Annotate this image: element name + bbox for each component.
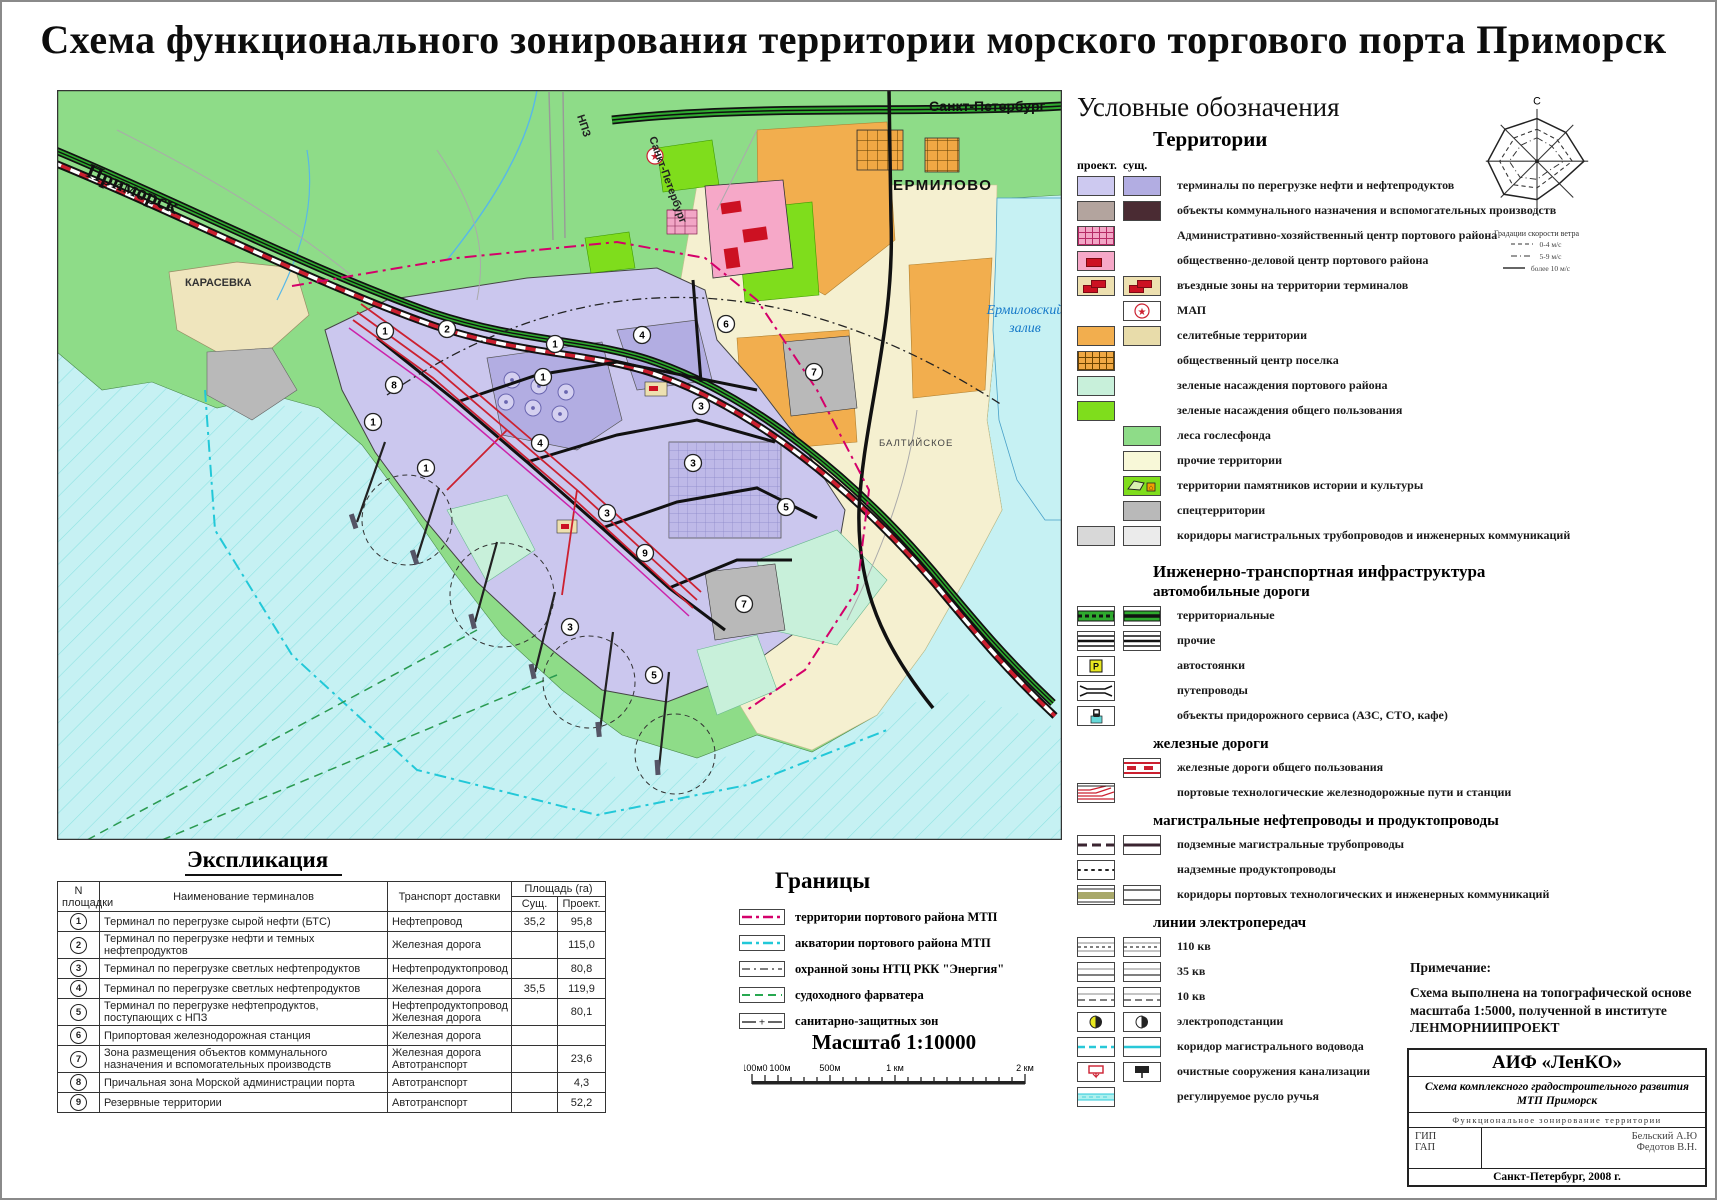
site-number: 6 bbox=[70, 1027, 87, 1044]
legend-label: территориальные bbox=[1169, 609, 1275, 623]
legend-label: зеленые насаждения портового района bbox=[1169, 379, 1388, 393]
swatch-road-other-proj bbox=[1077, 631, 1115, 651]
col-header-area: Площадь (га) bbox=[512, 882, 606, 897]
pipes-heading: магистральные нефтепроводы и продуктопро… bbox=[1153, 813, 1702, 830]
svg-text:1: 1 bbox=[540, 373, 546, 384]
site-number: 4 bbox=[70, 980, 87, 997]
legend-row: общественный центр поселка bbox=[1077, 349, 1702, 373]
swatch-terminals-proj bbox=[1077, 176, 1115, 196]
legend-row: 110 кв bbox=[1077, 935, 1702, 959]
swatch-water-main-proj bbox=[1077, 1037, 1115, 1057]
stamp-name-2: Федотов В.Н. bbox=[1490, 1142, 1697, 1153]
legend-row: коридоры магистральных трубопроводов и и… bbox=[1077, 524, 1702, 548]
svg-text:1: 1 bbox=[423, 464, 429, 475]
swatch-rail-port bbox=[1077, 783, 1115, 803]
legend-row: железные дороги общего пользования bbox=[1077, 756, 1702, 780]
legend-label: Административно-хозяйственный центр порт… bbox=[1169, 229, 1497, 243]
svg-text:4: 4 bbox=[639, 331, 645, 342]
table-row: 9Резервные территорииАвтотранспорт52,2 bbox=[58, 1093, 606, 1113]
legend-label: 35 кв bbox=[1169, 965, 1205, 979]
stamp-subtitle: Функциональное зонирование территории bbox=[1409, 1113, 1705, 1128]
wind-rose: С Градации скорости ветра 0-4 м/с 5-9 м/… bbox=[1454, 94, 1619, 274]
legend-label: прочие bbox=[1169, 634, 1215, 648]
entrance-zone-mark bbox=[561, 524, 569, 529]
svg-text:P: P bbox=[1093, 662, 1099, 672]
map-canvas: ★ Приморск Санкт-Петербург Санкт-Петербу… bbox=[57, 90, 1062, 840]
svg-text:⌂: ⌂ bbox=[1149, 484, 1153, 492]
note-text: Схема выполнена на топографической основ… bbox=[1410, 984, 1710, 1037]
svg-text:1: 1 bbox=[552, 340, 558, 351]
table-row: 3Терминал по перегрузке светлых нефтепро… bbox=[58, 959, 606, 979]
label-bay-1: Ермиловский bbox=[986, 303, 1062, 318]
stamp-signatures: ГИП ГАП Бельский А.Ю Федотов В.Н. bbox=[1409, 1128, 1705, 1169]
scale-tick-label: 2 км bbox=[1016, 1063, 1034, 1073]
legend-row: ⌂ территории памятников истории и культу… bbox=[1077, 474, 1702, 498]
legend-label: коридоры магистральных трубопроводов и и… bbox=[1169, 529, 1570, 543]
stamp-project: Схема комплексного градостроительного ра… bbox=[1409, 1077, 1705, 1113]
table-row: 2Терминал по перегрузке нефти и темных н… bbox=[58, 932, 606, 959]
legend-row: территориальные bbox=[1077, 604, 1702, 628]
table-row: 4Терминал по перегрузке светлых нефтепро… bbox=[58, 979, 606, 999]
border-label: судоходного фарватера bbox=[785, 988, 924, 1003]
swatch-entrance-sush bbox=[1123, 276, 1161, 296]
wind-grade-label: более 10 м/с bbox=[1531, 264, 1570, 273]
border-row: судоходного фарватера bbox=[739, 982, 1039, 1008]
site-number: 2 bbox=[70, 937, 87, 954]
col-header-proj: Проект. bbox=[558, 897, 606, 912]
swatch-settlement-center bbox=[1077, 351, 1115, 371]
legend-label: автостоянки bbox=[1169, 659, 1245, 673]
legend-row: спецтерритории bbox=[1077, 499, 1702, 523]
settlement-center bbox=[857, 130, 903, 170]
swatch-rail-common bbox=[1123, 758, 1161, 778]
swatch-monuments: ⌂ bbox=[1123, 476, 1161, 496]
scale-label: Масштаб 1:10000 bbox=[739, 1030, 1049, 1055]
entrance-zone-mark bbox=[649, 386, 658, 391]
swatch-sewage-sush bbox=[1123, 1062, 1161, 1082]
swatch-other-territories bbox=[1123, 451, 1161, 471]
settlement-center bbox=[925, 138, 959, 172]
svg-text:+: + bbox=[759, 1017, 765, 1029]
site-number: 1 bbox=[70, 913, 87, 930]
swatch-communal-sush bbox=[1123, 201, 1161, 221]
legend-label: 110 кв bbox=[1169, 940, 1211, 954]
explication: Экспликация N площадки Наименование терм… bbox=[57, 847, 605, 1113]
svg-text:9: 9 bbox=[642, 549, 648, 560]
swatch-corridors-sush bbox=[1123, 526, 1161, 546]
border-label: акватории портового района МТП bbox=[785, 936, 991, 951]
legend-row: P автостоянки bbox=[1077, 654, 1702, 678]
stamp-role-2: ГАП bbox=[1415, 1142, 1475, 1153]
legend-label: путепроводы bbox=[1169, 684, 1248, 698]
swatch-35kv-proj bbox=[1077, 962, 1115, 982]
scale-tick-label: 0 bbox=[762, 1063, 767, 1073]
site-number: 8 bbox=[70, 1074, 87, 1091]
swatch-stream-bed bbox=[1077, 1087, 1115, 1107]
wind-grade: 5-9 м/с bbox=[1454, 250, 1619, 262]
scheme-page: Схема функционального зонирования террит… bbox=[0, 0, 1717, 1200]
legend-label: объекты придорожного сервиса (АЗС, СТО, … bbox=[1169, 709, 1448, 723]
note-heading: Примечание: bbox=[1410, 960, 1710, 976]
swatch-road-other-sush bbox=[1123, 631, 1161, 651]
wind-rose-caption: Градации скорости ветра bbox=[1454, 229, 1619, 238]
col-header-transport: Транспорт доставки bbox=[388, 882, 512, 912]
border-label: охранной зоны НТЦ РКК "Энергия" bbox=[785, 962, 1004, 977]
explication-table: N площадки Наименование терминалов Транс… bbox=[57, 881, 606, 1113]
swatch-spec-territories bbox=[1123, 501, 1161, 521]
col-header-num: N площадки bbox=[58, 882, 100, 912]
legend-label: въездные зоны на территории терминалов bbox=[1169, 279, 1408, 293]
label-bay-2: залив bbox=[1008, 321, 1041, 336]
swatch-fairway-border bbox=[739, 987, 785, 1003]
swatch-roadside-service bbox=[1077, 706, 1115, 726]
legend-label: терминалы по перегрузке нефти и нефтепро… bbox=[1169, 179, 1454, 193]
map: ★ Приморск Санкт-Петербург Санкт-Петербу… bbox=[57, 90, 1062, 840]
swatch-sewage-proj bbox=[1077, 1062, 1115, 1082]
swatch-water-main-sush bbox=[1123, 1037, 1161, 1057]
legend-label: электроподстанции bbox=[1169, 1015, 1283, 1029]
swatch-road-terr-proj bbox=[1077, 606, 1115, 626]
label-karasevka: КАРАСЕВКА bbox=[185, 277, 252, 289]
border-row: акватории портового района МТП bbox=[739, 930, 1039, 956]
legend-label: прочие территории bbox=[1169, 454, 1282, 468]
label-ermilovo: ЕРМИЛОВО bbox=[893, 177, 992, 194]
scale-tick-label: 1 км bbox=[886, 1063, 904, 1073]
legend-row: зеленые насаждения общего пользования bbox=[1077, 399, 1702, 423]
svg-text:5: 5 bbox=[783, 503, 789, 514]
legend-row: зеленые насаждения портового района bbox=[1077, 374, 1702, 398]
legend-label: спецтерритории bbox=[1169, 504, 1265, 518]
legend-label: очистные сооружения канализации bbox=[1169, 1065, 1370, 1079]
legend-label: железные дороги общего пользования bbox=[1169, 761, 1383, 775]
swatch-port-greenery bbox=[1077, 376, 1115, 396]
auto-roads-heading: автомобильные дороги bbox=[1153, 584, 1702, 601]
infra-heading: Инженерно-транспортная инфраструктура bbox=[1153, 562, 1702, 582]
swatch-terminals-sush bbox=[1123, 176, 1161, 196]
swatch-tech-corridor-proj bbox=[1077, 885, 1115, 905]
page-title: Схема функционального зонирования террит… bbox=[2, 16, 1705, 63]
swatch-residential-sush bbox=[1123, 326, 1161, 346]
rail-heading: железные дороги bbox=[1153, 736, 1702, 753]
swatch-admin-center bbox=[1077, 226, 1115, 246]
table-row: 1Терминал по перегрузке сырой нефти (БТС… bbox=[58, 912, 606, 932]
swatch-sanitary-zone-border: + bbox=[739, 1013, 785, 1029]
legend-row: въездные зоны на территории терминалов bbox=[1077, 274, 1702, 298]
table-row: 8Причальная зона Морской администрации п… bbox=[58, 1073, 606, 1093]
stamp-name-1: Бельский А.Ю bbox=[1490, 1131, 1697, 1142]
scale-tick-label: 100м bbox=[744, 1063, 763, 1073]
svg-text:1: 1 bbox=[370, 418, 376, 429]
swatch-10kv-sush bbox=[1123, 987, 1161, 1007]
legend-row: путепроводы bbox=[1077, 679, 1702, 703]
border-row: охранной зоны НТЦ РКК "Энергия" bbox=[739, 956, 1039, 982]
swatch-overpass bbox=[1077, 681, 1115, 701]
legend-label: коридоры портовых технологических и инже… bbox=[1169, 888, 1549, 902]
wind-grade-label: 0-4 м/с bbox=[1539, 240, 1561, 249]
legend-label: коридор магистрального водовода bbox=[1169, 1040, 1364, 1054]
swatch-road-terr-sush bbox=[1123, 606, 1161, 626]
swatch-underground-pipe-proj bbox=[1077, 835, 1115, 855]
legend-label: портовые технологические железнодорожные… bbox=[1169, 786, 1511, 800]
title-block: АИФ «ЛенКО» Схема комплексного градостро… bbox=[1407, 1048, 1707, 1187]
legend-label: регулируемое русло ручья bbox=[1169, 1090, 1319, 1104]
border-row: территории портового района МТП bbox=[739, 904, 1039, 930]
borders-legend: Границы территории портового района МТП … bbox=[739, 868, 1039, 1034]
col-header-sush: Сущ. bbox=[512, 897, 558, 912]
swatch-map-star: ★ bbox=[1123, 301, 1161, 321]
north-label: С bbox=[1533, 96, 1541, 108]
legend-label: МАП bbox=[1169, 304, 1206, 318]
swatch-communal-proj bbox=[1077, 201, 1115, 221]
svg-text:★: ★ bbox=[1138, 307, 1147, 318]
legend-row: прочие bbox=[1077, 629, 1702, 653]
legend-row: селитебные территории bbox=[1077, 324, 1702, 348]
site-number: 7 bbox=[70, 1051, 87, 1068]
scale-block: Масштаб 1:10000 100м 0 100м 500м 1 км 2 … bbox=[739, 1030, 1049, 1100]
svg-text:3: 3 bbox=[698, 402, 704, 413]
col-header-name: Наименование терминалов bbox=[100, 882, 388, 912]
label-baltiyskoe: БАЛТИЙСКОЕ bbox=[879, 437, 953, 449]
legend-row: коридоры портовых технологических и инже… bbox=[1077, 883, 1702, 907]
label-spb-top: Санкт-Петербург bbox=[929, 98, 1046, 114]
svg-text:1: 1 bbox=[382, 327, 388, 338]
stamp-city: Санкт-Петербург, 2008 г. bbox=[1409, 1169, 1705, 1185]
table-row: 6Припортовая железнодорожная станцияЖеле… bbox=[58, 1026, 606, 1046]
stamp-org: АИФ «ЛенКО» bbox=[1409, 1050, 1705, 1077]
legend-label: надземные продуктопроводы bbox=[1169, 863, 1336, 877]
scale-bar: 100м 0 100м 500м 1 км 2 км bbox=[744, 1061, 1044, 1095]
swatch-35kv-sush bbox=[1123, 962, 1161, 982]
explication-title: Экспликация bbox=[185, 847, 342, 876]
table-row: 5Терминал по перегрузке нефтепродуктов, … bbox=[58, 999, 606, 1026]
site-number: 3 bbox=[70, 960, 87, 977]
swatch-public-greenery bbox=[1077, 401, 1115, 421]
svg-text:2: 2 bbox=[444, 325, 450, 336]
residential-zone bbox=[909, 258, 992, 398]
svg-text:3: 3 bbox=[567, 623, 573, 634]
swatch-parking: P bbox=[1077, 656, 1115, 676]
legend-row: надземные продуктопроводы bbox=[1077, 858, 1702, 882]
borders-title: Границы bbox=[775, 868, 1039, 894]
scale-tick-label: 100м bbox=[769, 1063, 790, 1073]
legend-row: объекты придорожного сервиса (АЗС, СТО, … bbox=[1077, 704, 1702, 728]
scale-tick-label: 500м bbox=[819, 1063, 840, 1073]
legend-row: ★ МАП bbox=[1077, 299, 1702, 323]
svg-text:5: 5 bbox=[651, 671, 657, 682]
swatch-residential-proj bbox=[1077, 326, 1115, 346]
svg-text:3: 3 bbox=[604, 509, 610, 520]
note: Примечание: Схема выполнена на топографи… bbox=[1410, 960, 1710, 1037]
table-row: 7Зона размещения объектов коммунального … bbox=[58, 1046, 606, 1073]
swatch-substation-proj bbox=[1077, 1012, 1115, 1032]
swatch-entrance-proj bbox=[1077, 276, 1115, 296]
svg-text:3: 3 bbox=[690, 459, 696, 470]
svg-text:4: 4 bbox=[537, 439, 543, 450]
swatch-110kv-proj bbox=[1077, 937, 1115, 957]
wind-grade: более 10 м/с bbox=[1454, 262, 1619, 274]
swatch-overground-pipe bbox=[1077, 860, 1115, 880]
swatch-business-center bbox=[1077, 251, 1115, 271]
stamp-role-1: ГИП bbox=[1415, 1131, 1475, 1142]
public-greenery bbox=[585, 232, 635, 273]
swatch-substation-sush bbox=[1123, 1012, 1161, 1032]
swatch-forest bbox=[1123, 426, 1161, 446]
legend-label: подземные магистральные трубопроводы bbox=[1169, 838, 1404, 852]
legend-row: подземные магистральные трубопроводы bbox=[1077, 833, 1702, 857]
legend-row: прочие территории bbox=[1077, 449, 1702, 473]
svg-text:7: 7 bbox=[811, 368, 817, 379]
legend-label: 10 кв bbox=[1169, 990, 1205, 1004]
swatch-underground-pipe-sush bbox=[1123, 835, 1161, 855]
border-label: территории портового района МТП bbox=[785, 910, 997, 925]
svg-text:8: 8 bbox=[391, 381, 397, 392]
legend-label: общественно-деловой центр портового райо… bbox=[1169, 254, 1428, 268]
legend-row: портовые технологические железнодорожные… bbox=[1077, 781, 1702, 805]
swatch-security-zone-border bbox=[739, 961, 785, 977]
legend-label: территории памятников истории и культуры bbox=[1169, 479, 1423, 493]
swatch-tech-corridor-sush bbox=[1123, 885, 1161, 905]
legend-label: зеленые насаждения общего пользования bbox=[1169, 404, 1402, 418]
svg-text:6: 6 bbox=[723, 320, 729, 331]
building bbox=[724, 247, 741, 269]
legend-label: леса гослесфонда bbox=[1169, 429, 1271, 443]
swatch-corridors-proj bbox=[1077, 526, 1115, 546]
swatch-110kv-sush bbox=[1123, 937, 1161, 957]
wind-grade: 0-4 м/с bbox=[1454, 238, 1619, 250]
wind-rose-diagram: С bbox=[1467, 94, 1607, 222]
site-number: 5 bbox=[70, 1004, 87, 1021]
border-label: санитарно-защитных зон bbox=[785, 1014, 938, 1029]
col-project: проект. bbox=[1077, 158, 1123, 173]
swatch-water-area-border bbox=[739, 935, 785, 951]
wind-grade-label: 5-9 м/с bbox=[1539, 252, 1561, 261]
swatch-10kv-proj bbox=[1077, 987, 1115, 1007]
legend-label: селитебные территории bbox=[1169, 329, 1307, 343]
swatch-port-territory-border bbox=[739, 909, 785, 925]
col-existing: сущ. bbox=[1123, 158, 1169, 173]
territories-heading: Территории bbox=[1153, 127, 1702, 152]
power-heading: линии электропередач bbox=[1153, 915, 1702, 932]
site-number: 9 bbox=[70, 1094, 87, 1111]
legend-label: общественный центр поселка bbox=[1169, 354, 1339, 368]
svg-text:7: 7 bbox=[741, 600, 747, 611]
legend-row: леса гослесфонда bbox=[1077, 424, 1702, 448]
